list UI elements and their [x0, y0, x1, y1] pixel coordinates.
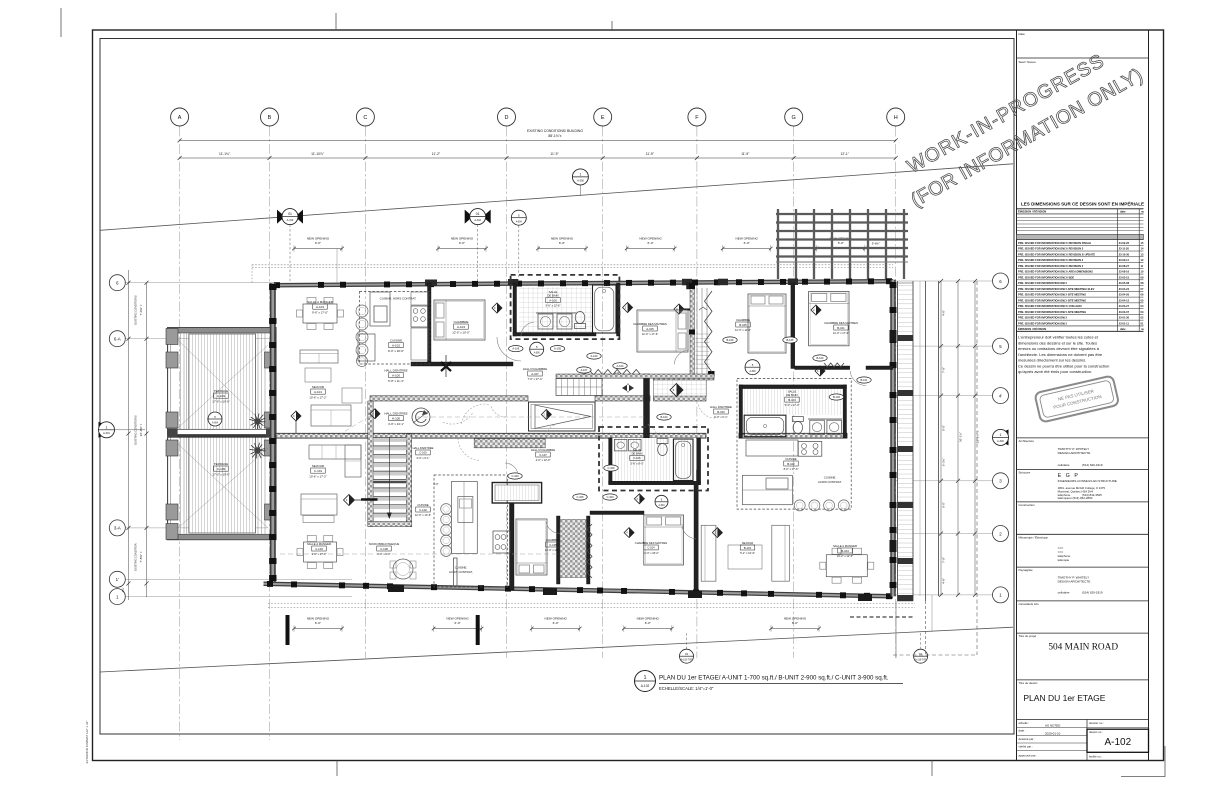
svg-text:A-105: A-105	[554, 347, 561, 351]
svg-text:88'-1¾"±: 88'-1¾"±	[548, 134, 561, 138]
svg-text:5'-6" x 8'-0": 5'-6" x 8'-0"	[631, 461, 644, 465]
svg-text:Paysagiste: Paysagiste	[1019, 568, 1034, 572]
svg-text:dessiné par :: dessiné par :	[1019, 737, 1036, 741]
svg-text:23-03-27: 23-03-27	[1119, 304, 1130, 308]
svg-text:PRE. ISSUED FOR INFORMATION ON: PRE. ISSUED FOR INFORMATION ONLY/ REVISI…	[1018, 252, 1095, 256]
svg-text:Structure: Structure	[1019, 471, 1031, 475]
svg-text:Ce dessin ne pourra être utili: Ce dessin ne pourra être utilisé pour la…	[1018, 363, 1109, 368]
svg-text:Architecture: Architecture	[1019, 439, 1035, 443]
svg-text:23-03-07: 23-03-07	[1119, 310, 1130, 314]
svg-text:CHAMBRE DES MAITRES: CHAMBRE DES MAITRES	[633, 322, 667, 326]
svg-text:6'-0": 6'-0"	[942, 502, 946, 508]
svg-text:SALLE A MANGER: SALLE A MANGER	[307, 542, 331, 546]
svg-text:A-102: A-102	[641, 684, 650, 688]
svg-text:no: no	[1141, 211, 1145, 214]
svg-text:4'-8": 4'-8"	[942, 310, 946, 316]
svg-text:INGENIEURS-CONSEILS EN STRUCTU: INGENIEURS-CONSEILS EN STRUCTURE	[1058, 479, 1117, 483]
svg-text:B-105: B-105	[787, 338, 794, 342]
svg-text:4'-0" x 12'-0": 4'-0" x 12'-0"	[536, 458, 551, 462]
svg-text:23-04-12: 23-04-12	[1119, 298, 1130, 302]
svg-text:A-104: A-104	[457, 325, 465, 329]
svg-text:A-100: A-100	[591, 354, 598, 358]
svg-text:A-301: A-301	[103, 432, 110, 435]
svg-text:A-300: A-300	[997, 440, 1004, 443]
svg-text:23-04-24: 23-04-24	[1119, 287, 1130, 291]
svg-text:6'-0": 6'-0"	[553, 621, 559, 625]
svg-text:E: E	[601, 115, 605, 121]
svg-text:23-09-11: 23-09-11	[1119, 258, 1130, 262]
svg-text:PRE. ISSUED FOR INFORMATION ON: PRE. ISSUED FOR INFORMATION ONLY	[1018, 316, 1067, 320]
svg-text:C-108: C-108	[380, 547, 388, 551]
svg-text:HALL D’ENTREE: HALL D’ENTREE	[384, 369, 407, 373]
svg-text:G: G	[792, 115, 796, 121]
svg-text:Titre du dessin: Titre du dessin	[1019, 681, 1038, 685]
svg-text:(514) 629-1919: (514) 629-1919	[1082, 463, 1103, 467]
svg-text:approuvé par :: approuvé par :	[1019, 754, 1038, 758]
svg-text:9'-6" x 17'-0": 9'-6" x 17'-0"	[312, 311, 328, 315]
svg-text:7'-6" x 17'-4": 7'-6" x 17'-4"	[528, 377, 543, 381]
svg-text:PRE. ISSUED FOR INFORMATION ON: PRE. ISSUED FOR INFORMATION ONLY/ BDE	[1018, 275, 1074, 279]
svg-text:qu'après avoir été émis pour c: qu'après avoir été émis pour constructio…	[1018, 369, 1092, 374]
svg-text:A-310: A-310	[474, 219, 481, 222]
svg-text:PRE. ISSUED FOR INFORMATION ON: PRE. ISSUED FOR INFORMATION ONLY/ REVISI…	[1018, 264, 1084, 268]
svg-text:6'-0": 6'-0"	[648, 241, 654, 245]
svg-text:NOOK/ BIBLIOTHEQUE: NOOK/ BIBLIOTHEQUE	[369, 542, 400, 546]
svg-text:11'-0" x 17'-6": 11'-0" x 17'-6"	[833, 331, 849, 335]
svg-text:A: A	[178, 115, 182, 121]
svg-text:11'-9": 11'-9"	[646, 152, 655, 156]
svg-text:PRE. ISSUED FOR INFORMATION ON: PRE. ISSUED FOR INFORMATION ONLY-SITE ME…	[1018, 287, 1095, 291]
svg-text:mesurées directement sur les d: mesurées directement sur les dessins.	[1018, 358, 1086, 363]
svg-text:B: B	[268, 115, 272, 121]
svg-text:Date: Date	[1019, 32, 1026, 36]
svg-text:1': 1'	[116, 577, 119, 582]
svg-text:3-A: 3-A	[114, 526, 121, 531]
svg-text:C-106: C-106	[607, 466, 615, 470]
svg-text:C-105: C-105	[576, 495, 584, 499]
svg-text:2020-01-10: 2020-01-10	[1045, 732, 1061, 736]
svg-text:6'-0" x 6'-1": 6'-0" x 6'-1"	[714, 415, 727, 419]
svg-text:A-109: A-109	[217, 394, 225, 398]
svg-text:HORS CONTRAT,: HORS CONTRAT,	[449, 570, 473, 574]
svg-text:23-01-11: 23-01-11	[1119, 321, 1130, 325]
svg-text:B-105: B-105	[739, 323, 747, 327]
svg-text:A-106: A-106	[549, 298, 557, 302]
svg-text:A-604: A-604	[212, 421, 219, 424]
svg-text:6'-0": 6'-0"	[744, 241, 750, 245]
svg-text:01: 01	[476, 212, 480, 216]
svg-text:5'-2" x 16'-9": 5'-2" x 16'-9"	[740, 551, 755, 555]
svg-text:PRE. ISSUED FOR INFORMATION ON: PRE. ISSUED FOR INFORMATION ONLY/ REVISI…	[1018, 241, 1091, 245]
svg-text:B-100: B-100	[661, 415, 668, 419]
svg-text:CHAMBRE: CHAMBRE	[453, 320, 468, 324]
svg-text:CHAMBRE: CHAMBRE	[546, 538, 560, 542]
svg-text:H-100: H-100	[392, 417, 401, 421]
svg-text:L'entrepreneur doit vérifier t: L'entrepreneur doit vérifier toutes les …	[1018, 335, 1099, 340]
svg-text:4'-8": 4'-8"	[942, 578, 946, 584]
svg-text:A-600: A-600	[534, 352, 541, 355]
svg-text:A-105: A-105	[646, 327, 654, 331]
svg-text:6'-0": 6'-0"	[459, 241, 465, 245]
svg-text:PRE. ISSUED FOR INFORMATION ON: PRE. ISSUED FOR INFORMATION ONLY/ REVISI…	[1018, 247, 1084, 251]
svg-text:23-10-30: 23-10-30	[1119, 252, 1130, 256]
svg-text:CHAMBRE DES MAITRES: CHAMBRE DES MAITRES	[635, 541, 668, 545]
svg-text:PRE. ISSUED FOR INFORMATION ON: PRE. ISSUED FOR INFORMATION ONLY	[1018, 281, 1067, 285]
svg-text:12'-0" x 13'-6": 12'-0" x 13'-6"	[415, 513, 431, 517]
svg-text:12'-1": 12'-1"	[840, 152, 849, 156]
svg-text:DESIGN-ARCHITECTE: DESIGN-ARCHITECTE	[1058, 451, 1091, 455]
svg-text:01: 01	[919, 652, 923, 656]
svg-text:5'-8" x 11'-4": 5'-8" x 11'-4"	[388, 379, 404, 383]
svg-text:A-107: A-107	[580, 368, 587, 372]
svg-text:SALLE A MANGER: SALLE A MANGER	[833, 544, 857, 548]
svg-text:11'-9": 11'-9"	[741, 152, 750, 156]
svg-text:11'-0" x 18'-0": 11'-0" x 18'-0"	[643, 551, 659, 555]
svg-text:HALL D’CHAMBRE: HALL D’CHAMBRE	[523, 367, 547, 371]
svg-text:AS NOTED: AS NOTED	[1045, 724, 1061, 728]
svg-text:A-104: A-104	[617, 364, 624, 368]
svg-text:10'-2" x 12'-6": 10'-2" x 12'-6"	[837, 554, 853, 558]
svg-text:PLAN DU 1er ETAGE: PLAN DU 1er ETAGE	[1023, 693, 1105, 703]
svg-text:PLAN DU 1er ETAGE/ A-UNIT 1-70: PLAN DU 1er ETAGE/ A-UNIT 1-700 sq.ft./ …	[659, 675, 889, 682]
svg-text:SEJOUR: SEJOUR	[312, 464, 325, 468]
svg-text:504 MAIN ROAD: 504 MAIN ROAD	[1048, 643, 1118, 653]
svg-text:23-01-30: 23-01-30	[1119, 316, 1130, 320]
svg-text:B-103: B-103	[833, 395, 840, 399]
svg-text:A-604: A-604	[516, 220, 523, 223]
svg-text:12'-0" x 10'-0": 12'-0" x 10'-0"	[545, 548, 561, 552]
svg-text:SEJOUR: SEJOUR	[742, 541, 753, 545]
svg-text:HORS CONTRAT.: HORS CONTRAT.	[818, 480, 842, 484]
svg-text:C-104: C-104	[647, 546, 655, 550]
svg-text:A-118-TYP: A-118-TYP	[681, 659, 692, 662]
svg-text:A-101: A-101	[314, 390, 322, 394]
svg-text:télécopie: télécopie	[1058, 558, 1070, 562]
svg-text:D: D	[505, 115, 509, 121]
svg-text:date: date	[1120, 327, 1126, 331]
svg-text:no: no	[1141, 328, 1145, 331]
svg-text:B-104: B-104	[841, 549, 849, 553]
svg-text:-9¾": -9¾"	[121, 587, 125, 592]
svg-text:A-100: A-100	[392, 374, 400, 378]
svg-text:erreurs ou omissions devront ê: erreurs ou omissions devront être signal…	[1018, 346, 1100, 351]
svg-text:CUISINE: CUISINE	[417, 503, 428, 507]
svg-text:HALL D’ENTREE: HALL D’ENTREE	[710, 405, 732, 409]
svg-text:A-604: A-604	[659, 504, 666, 507]
svg-text:PRE. ISSUED FOR INFORMATION ON: PRE. ISSUED FOR INFORMATION ONLY	[1018, 321, 1067, 325]
svg-text:5'-6" x 12'-6": 5'-6" x 12'-6"	[546, 304, 561, 308]
svg-text:10'-6" x 17'-2": 10'-6" x 17'-2"	[309, 396, 327, 400]
svg-text:C-102: C-102	[419, 508, 427, 512]
svg-text:17'-0" x 10'-6": 17'-0" x 10'-6"	[212, 473, 230, 477]
svg-text:1: 1	[106, 425, 108, 429]
svg-text:B-101: B-101	[837, 326, 845, 330]
svg-text:C-107: C-107	[539, 453, 547, 457]
svg-text:7'-0⅝" ±: 7'-0⅝" ±	[139, 304, 143, 315]
svg-text:11'-9": 11'-9"	[550, 152, 559, 156]
svg-text:dessin no :: dessin no :	[1089, 730, 1103, 734]
svg-text:cellulaire: cellulaire	[1058, 591, 1070, 595]
svg-text:DESIGN-ARCHITECTE: DESIGN-ARCHITECTE	[1058, 580, 1091, 584]
svg-text:C-106: C-106	[633, 456, 641, 460]
svg-text:EXISTING CONDITION: EXISTING CONDITION	[134, 543, 138, 571]
svg-text:A-106: A-106	[512, 347, 519, 351]
svg-text:C-100: C-100	[606, 495, 614, 499]
svg-text:CUISINE: CUISINE	[390, 339, 402, 343]
svg-text:TERRACE: TERRACE	[214, 462, 228, 466]
svg-text:12'-0" x 17'-6": 12'-0" x 17'-6"	[642, 332, 658, 336]
svg-text:PRE. ISSUED FOR INFORMATION ON: PRE. ISSUED FOR INFORMATION ONLY/ AREA D…	[1018, 270, 1093, 274]
svg-text:PRE. ISSUED FOR INFORMATION ON: PRE. ISSUED FOR INFORMATION ONLY-SITE ME…	[1018, 298, 1086, 302]
svg-text:6'-0": 6'-0"	[559, 241, 565, 245]
svg-text:1: 1	[644, 675, 647, 681]
svg-text:B-101: B-101	[744, 546, 752, 550]
svg-text:1: 1	[579, 172, 581, 176]
svg-text:6'-3¾": 6'-3¾"	[942, 458, 946, 466]
svg-text:4'-0": 4'-0"	[614, 371, 619, 375]
svg-text:vérifié par :: vérifié par :	[1019, 745, 1033, 749]
svg-text:A-306: A-306	[577, 179, 584, 182]
svg-text:PRE. ISSUED FOR INFORMATION ON: PRE. ISSUED FOR INFORMATION ONLY/ CON-AV…	[1018, 304, 1082, 308]
svg-text:23-08-10: 23-08-10	[1119, 270, 1130, 274]
svg-text:3'-0": 3'-0"	[433, 482, 438, 486]
svg-text:23-03-15: 23-03-15	[1119, 275, 1130, 279]
svg-text:B-103: B-103	[788, 398, 796, 402]
svg-text:C-109: C-109	[217, 467, 226, 471]
svg-text:TERRACE: TERRACE	[214, 389, 228, 393]
svg-text:A-310: A-310	[287, 219, 294, 222]
svg-text:4'-9" x 34'-1": 4'-9" x 34'-1"	[388, 422, 404, 426]
svg-text:A-102: A-102	[392, 344, 400, 348]
svg-text:A-107: A-107	[531, 372, 539, 376]
svg-text:11'-1¾": 11'-1¾"	[219, 152, 231, 156]
svg-text:date :: date :	[1019, 729, 1026, 733]
svg-text:12'-0" x 10'-0": 12'-0" x 10'-0"	[452, 331, 470, 335]
svg-text:A-118-TYP: A-118-TYP	[915, 659, 926, 662]
svg-text:C: C	[363, 115, 367, 121]
svg-text:DE BAIN: DE BAIN	[786, 393, 797, 397]
svg-text:7'-9": 7'-9"	[942, 557, 946, 563]
svg-text:consultants info: consultants info	[1019, 602, 1039, 606]
svg-text:23-08-27: 23-08-27	[1119, 264, 1130, 268]
svg-text:B-100: B-100	[717, 410, 725, 414]
svg-text:EXISTING CONDITIONS: EXISTING CONDITIONS	[134, 415, 138, 444]
svg-text:C-103: C-103	[315, 547, 323, 551]
svg-text:01: 01	[685, 652, 689, 656]
svg-text:7'-9": 7'-9"	[942, 367, 946, 373]
svg-text:5'-3" x 17'-3": 5'-3" x 17'-3"	[785, 403, 800, 407]
svg-text:6'-0": 6'-0"	[645, 621, 651, 625]
svg-text:feuille no :: feuille no :	[1089, 755, 1102, 759]
svg-text:PRE. ISSUED FOR INFORMATION ON: PRE. ISSUED FOR INFORMATION ONLY-SITE ME…	[1018, 310, 1086, 314]
svg-text:PRE. ISSUED FOR INFORMATION ON: PRE. ISSUED FOR INFORMATION ONLY-SITE ME…	[1018, 293, 1086, 297]
svg-text:Titre du projet: Titre du projet	[1019, 634, 1037, 638]
svg-text:HALL D’CHAMBRE: HALL D’CHAMBRE	[531, 448, 555, 452]
svg-text:C-100: C-100	[419, 451, 427, 455]
svg-text:dossier no :: dossier no :	[1089, 721, 1104, 725]
svg-text:télécopieur (514) 842-2890: télécopieur (514) 842-2890	[1058, 496, 1093, 500]
svg-text:DE BAIN: DE BAIN	[547, 294, 558, 298]
svg-text:6'-0": 6'-0"	[455, 621, 461, 625]
svg-text:23-04-20: 23-04-20	[1119, 293, 1130, 297]
svg-text:Seal / Sceau: Seal / Sceau	[1019, 60, 1036, 64]
svg-text:Construction: Construction	[1019, 503, 1036, 507]
svg-text:C-105: C-105	[549, 543, 557, 547]
svg-text:12'-0" x 11'-6": 12'-0" x 11'-6"	[735, 328, 751, 332]
svg-text:LES DIMENSIONS SUR CE DESSIN S: LES DIMENSIONS SUR CE DESSIN SONT EN IMP…	[1021, 200, 1144, 207]
svg-text:EXISTING CONDITIONS/ BUILDING: EXISTING CONDITIONS/ BUILDING	[527, 129, 583, 133]
svg-text:B-106: B-106	[727, 338, 734, 342]
svg-text:6'-0": 6'-0"	[315, 241, 321, 245]
svg-text:CUISINE: CUISINE	[785, 457, 796, 461]
svg-text:36'-1¾": 36'-1¾"	[959, 432, 963, 442]
svg-text:23-05-08: 23-05-08	[1119, 281, 1130, 285]
svg-text:6'-0": 6'-0"	[315, 621, 321, 625]
svg-text:ECHELLE/SCALE: 1/4"=1'-0": ECHELLE/SCALE: 1/4"=1'-0"	[659, 686, 714, 691]
svg-text:8'-0" x 17'-6": 8'-0" x 17'-6"	[784, 467, 799, 471]
svg-text:EXTERIOR FORMAT 112" x 34": EXTERIOR FORMAT 112" x 34"	[85, 721, 89, 764]
svg-text:H: H	[894, 115, 898, 121]
svg-text:10'-6" x 17'-2": 10'-6" x 17'-2"	[309, 475, 327, 479]
svg-text:7'-5⅝" ±: 7'-5⅝" ±	[139, 551, 143, 562]
svg-text:24-02-20: 24-02-20	[1119, 241, 1130, 245]
svg-text:SALLE: SALLE	[633, 448, 642, 452]
svg-text:B-104: B-104	[817, 356, 824, 360]
svg-text:17'-0" x 10'-6": 17'-0" x 10'-6"	[212, 400, 230, 404]
svg-text:HALL D’ENTREE: HALL D’ENTREE	[413, 446, 434, 450]
svg-text:6'-0" x 6'-1": 6'-0" x 6'-1"	[417, 456, 430, 460]
svg-text:échelle :: échelle :	[1019, 721, 1030, 725]
svg-text:01: 01	[288, 212, 292, 216]
svg-text:l'architecte. Les dimensions n: l'architecte. Les dimensions ne doivent …	[1018, 352, 1103, 357]
svg-text:A-103: A-103	[316, 305, 324, 309]
svg-text:6'-0": 6'-0"	[942, 425, 946, 431]
svg-text:dimensions des dessins et sur: dimensions des dessins et sur le site. T…	[1018, 340, 1097, 345]
svg-text:11'-10⅞": 11'-10⅞"	[311, 152, 325, 156]
svg-text:6-A: 6-A	[114, 337, 121, 342]
svg-text:11'-2": 11'-2"	[432, 152, 441, 156]
svg-text:PRE. ISSUED FOR INFORMATION ON: PRE. ISSUED FOR INFORMATION ONLY/ REVISI…	[1018, 258, 1084, 262]
svg-text:C-101: C-101	[314, 469, 323, 473]
svg-text:23-11-20: 23-11-20	[1119, 247, 1130, 251]
svg-text:date: date	[1120, 210, 1126, 214]
svg-text:4': 4'	[999, 393, 1002, 398]
svg-text:1: 1	[1000, 433, 1002, 437]
svg-text:5'-8¾": 5'-8¾"	[872, 242, 880, 246]
svg-text:B-101: B-101	[861, 378, 868, 382]
svg-text:6'-0" x 18'-6": 6'-0" x 18'-6"	[388, 349, 404, 353]
svg-text:A-600: A-600	[750, 370, 757, 373]
svg-text:CUISINE. HORS CONTRAT.: CUISINE. HORS CONTRAT.	[380, 297, 417, 301]
svg-text:SEJOUR: SEJOUR	[312, 385, 325, 389]
svg-text:(514) 629-1919: (514) 629-1919	[1082, 591, 1103, 595]
svg-text:A-102: A-102	[1104, 737, 1131, 748]
svg-text:6'-0": 6'-0"	[792, 621, 798, 625]
svg-text:6'-0": 6'-0"	[838, 241, 844, 245]
svg-text:cellulaire: cellulaire	[1058, 463, 1070, 467]
svg-text:36'-4⅝" ±: 36'-4⅝" ±	[139, 423, 143, 436]
svg-text:B-102: B-102	[787, 462, 795, 466]
svg-text:DE BAIN: DE BAIN	[632, 452, 643, 456]
svg-text:35'-1¾" ±: 35'-1¾" ±	[976, 430, 980, 443]
svg-text:C-109: C-109	[511, 474, 519, 478]
svg-text:CHAMBRE: CHAMBRE	[736, 318, 750, 322]
svg-text:HALL D’ENTREE: HALL D’ENTREE	[384, 412, 407, 416]
svg-text:Mécanique / Électrique: Mécanique / Électrique	[1019, 534, 1049, 539]
svg-text:CHAMBRE DES MAITRES: CHAMBRE DES MAITRES	[824, 321, 858, 325]
svg-text:EXISTING CONDITIONS: EXISTING CONDITIONS	[134, 295, 138, 324]
